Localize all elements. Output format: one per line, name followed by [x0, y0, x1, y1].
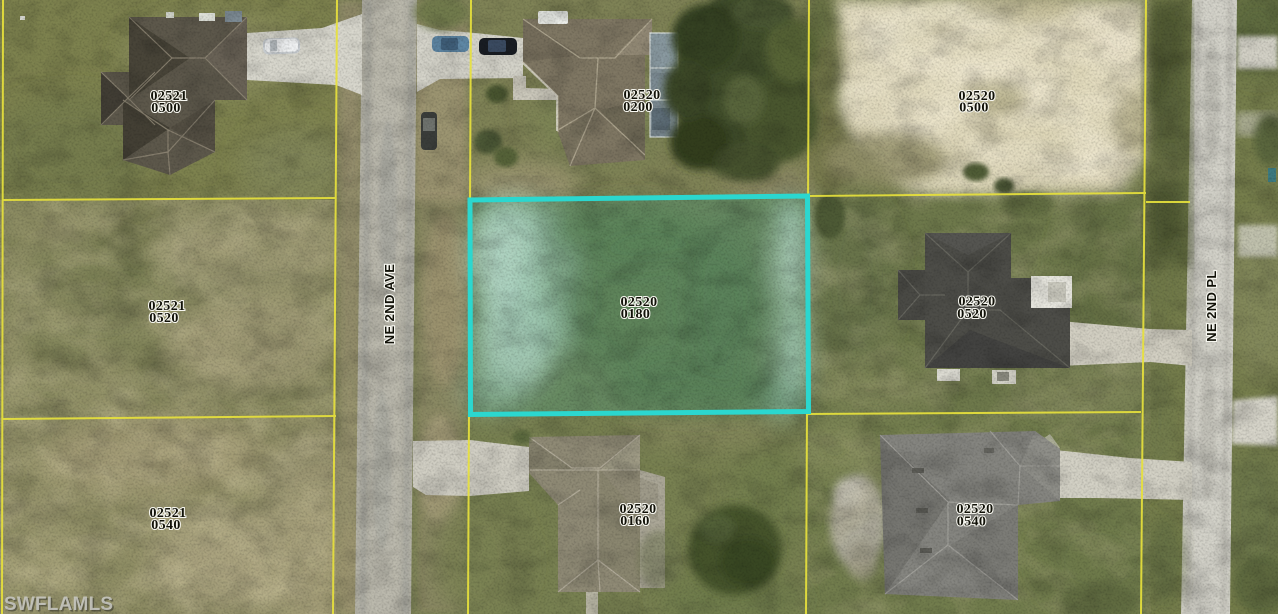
svg-text:SWFLAMLS: SWFLAMLS [4, 594, 113, 614]
svg-text:0500: 0500 [151, 101, 181, 116]
svg-text:0540: 0540 [957, 515, 987, 530]
svg-text:0500: 0500 [959, 101, 989, 116]
svg-text:NE 2ND AVE: NE 2ND AVE [382, 264, 397, 345]
svg-text:NE 2ND PL: NE 2ND PL [1204, 270, 1219, 342]
svg-text:0520: 0520 [957, 307, 987, 322]
svg-text:0160: 0160 [620, 514, 650, 529]
svg-text:0180: 0180 [621, 307, 651, 322]
svg-text:0200: 0200 [623, 100, 653, 115]
svg-text:0520: 0520 [149, 311, 179, 326]
svg-text:0540: 0540 [151, 518, 181, 533]
